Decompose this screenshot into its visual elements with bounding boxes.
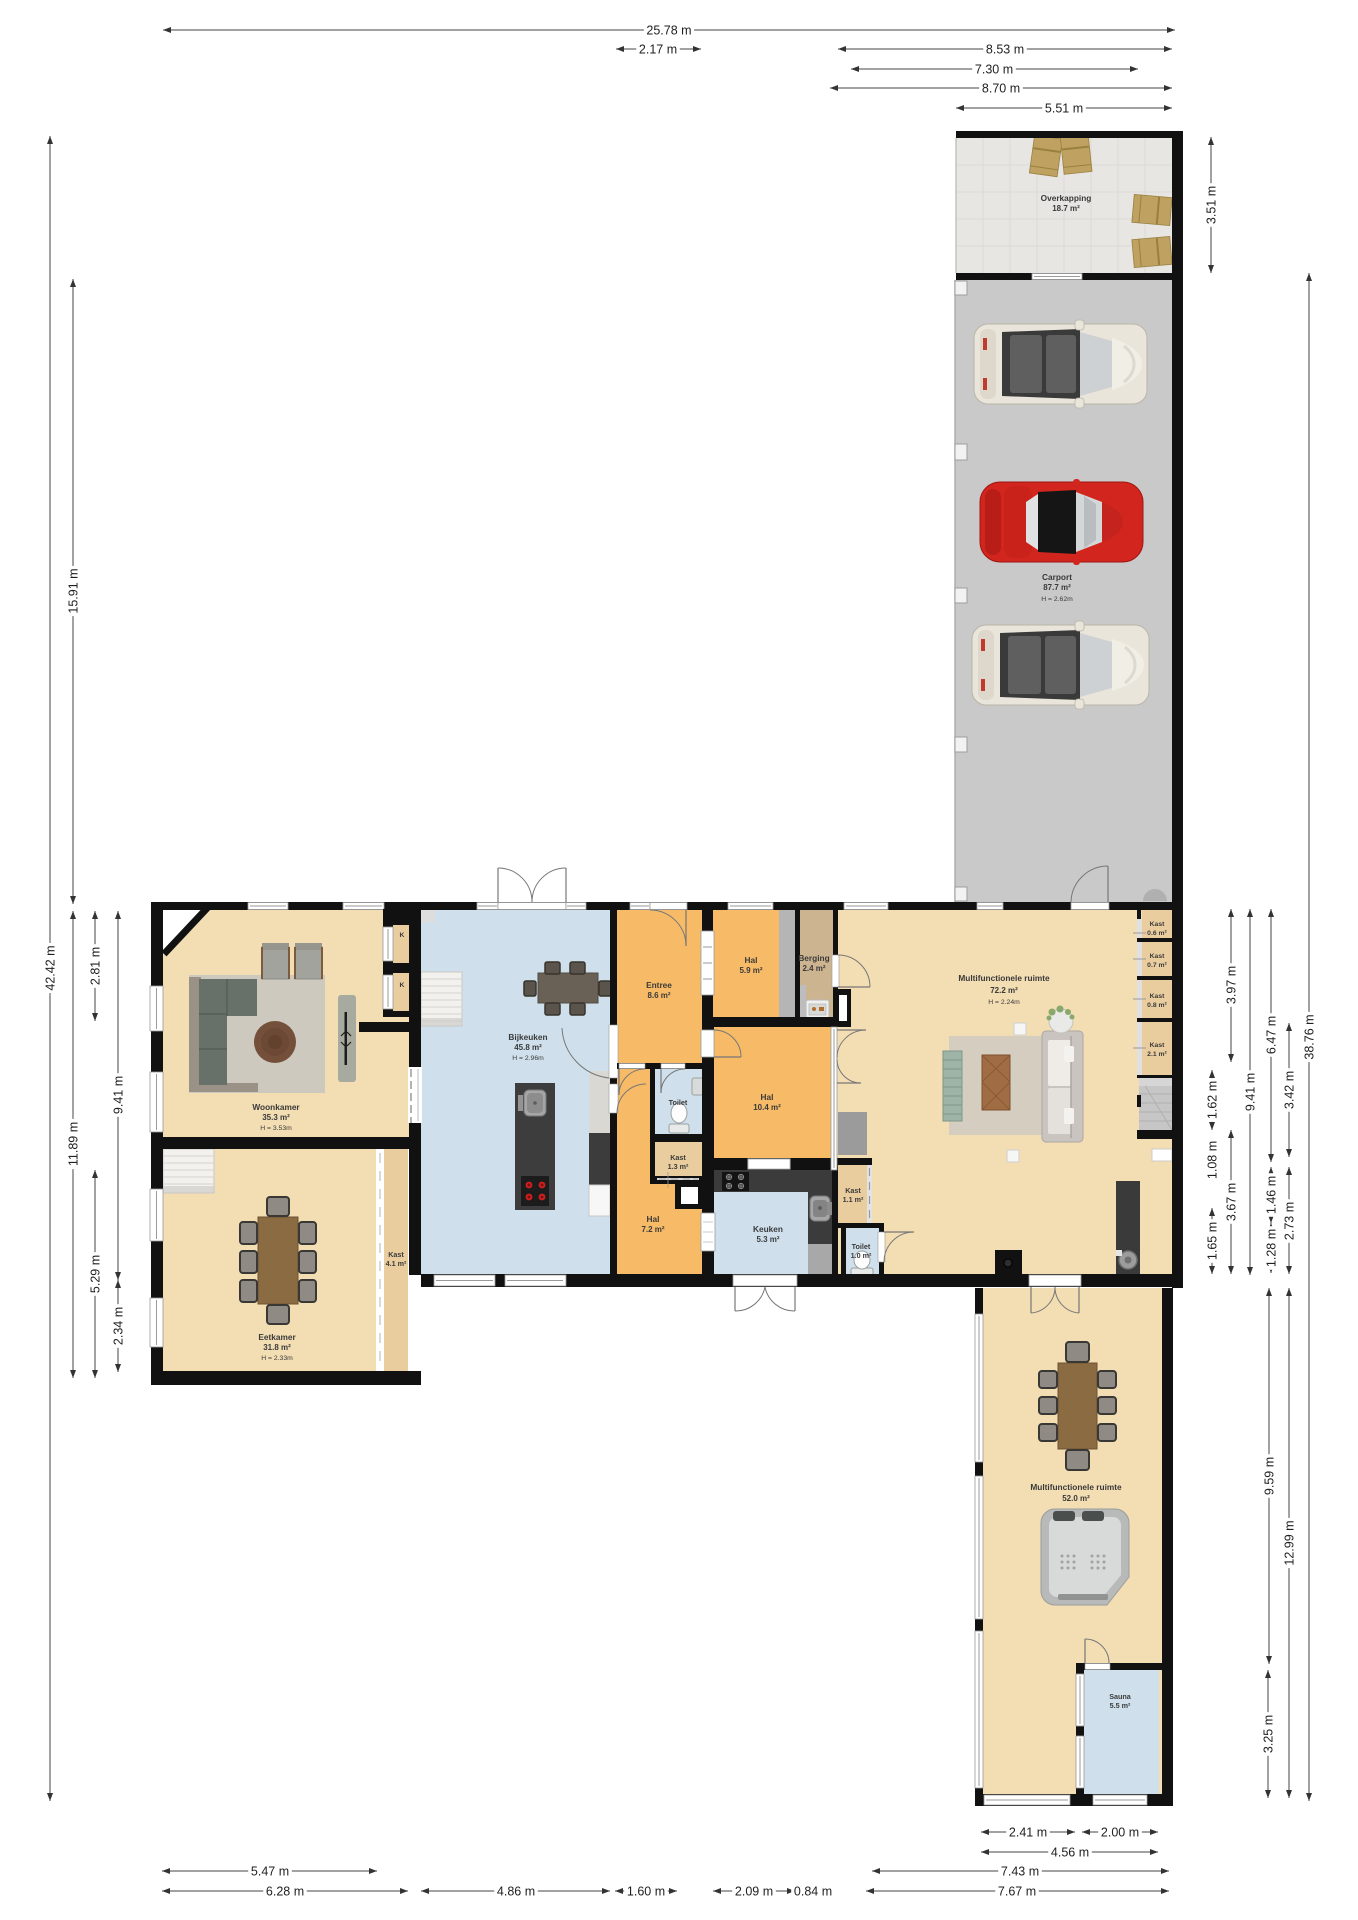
svg-text:5.3 m²: 5.3 m² bbox=[756, 1235, 779, 1244]
svg-text:3.25 m: 3.25 m bbox=[1262, 1715, 1276, 1753]
svg-text:2.73 m: 2.73 m bbox=[1283, 1202, 1297, 1240]
svg-text:Berging: Berging bbox=[798, 953, 829, 963]
svg-text:1.28 m: 1.28 m bbox=[1265, 1229, 1279, 1267]
svg-text:Eetkamer: Eetkamer bbox=[258, 1332, 296, 1342]
svg-text:3.51 m: 3.51 m bbox=[1205, 186, 1219, 224]
svg-text:9.41 m: 9.41 m bbox=[112, 1076, 126, 1114]
svg-text:4.56 m: 4.56 m bbox=[1051, 1846, 1089, 1860]
svg-text:7.2 m²: 7.2 m² bbox=[641, 1225, 664, 1234]
svg-text:Sauna: Sauna bbox=[1109, 1692, 1132, 1701]
svg-text:2.81 m: 2.81 m bbox=[89, 947, 103, 985]
svg-text:42.42 m: 42.42 m bbox=[44, 945, 58, 990]
svg-text:4.1 m²: 4.1 m² bbox=[386, 1259, 407, 1268]
svg-text:72.2 m²: 72.2 m² bbox=[990, 986, 1018, 995]
svg-text:12.99 m: 12.99 m bbox=[1283, 1520, 1297, 1565]
svg-text:H = 2.96m: H = 2.96m bbox=[512, 1055, 544, 1062]
svg-text:5.5 m²: 5.5 m² bbox=[1110, 1701, 1131, 1710]
svg-text:Kast: Kast bbox=[670, 1153, 686, 1162]
svg-text:3.67 m: 3.67 m bbox=[1225, 1183, 1239, 1221]
svg-text:5.47 m: 5.47 m bbox=[251, 1865, 289, 1879]
svg-text:8.53 m: 8.53 m bbox=[986, 43, 1024, 57]
svg-text:Entree: Entree bbox=[646, 980, 672, 990]
svg-text:1.60 m: 1.60 m bbox=[627, 1885, 665, 1899]
svg-text:25.78 m: 25.78 m bbox=[646, 24, 691, 38]
svg-text:Kast: Kast bbox=[1150, 953, 1165, 960]
svg-text:1.3 m²: 1.3 m² bbox=[668, 1162, 689, 1171]
svg-text:8.70 m: 8.70 m bbox=[982, 82, 1020, 96]
svg-text:Multifunctionele ruimte: Multifunctionele ruimte bbox=[958, 973, 1050, 983]
svg-text:Woonkamer: Woonkamer bbox=[252, 1102, 300, 1112]
svg-text:Hal: Hal bbox=[647, 1214, 660, 1224]
svg-text:3.42 m: 3.42 m bbox=[1283, 1071, 1297, 1109]
svg-text:15.91 m: 15.91 m bbox=[67, 568, 81, 613]
svg-text:52.0 m²: 52.0 m² bbox=[1062, 1494, 1090, 1503]
svg-text:K: K bbox=[400, 982, 405, 989]
svg-text:1.62 m: 1.62 m bbox=[1206, 1081, 1220, 1119]
svg-text:Kast: Kast bbox=[1150, 993, 1165, 1000]
svg-text:2.41 m: 2.41 m bbox=[1009, 1826, 1047, 1840]
svg-text:8.6 m²: 8.6 m² bbox=[647, 991, 670, 1000]
svg-text:31.8 m²: 31.8 m² bbox=[263, 1343, 291, 1352]
svg-text:9.59 m: 9.59 m bbox=[1263, 1457, 1277, 1495]
svg-text:Bijkeuken: Bijkeuken bbox=[508, 1032, 547, 1042]
svg-text:K: K bbox=[400, 932, 405, 939]
svg-text:Toilet: Toilet bbox=[669, 1098, 688, 1107]
svg-text:1.08 m: 1.08 m bbox=[1206, 1141, 1220, 1179]
svg-text:Carport: Carport bbox=[1042, 572, 1072, 582]
svg-text:H = 3.53m: H = 3.53m bbox=[260, 1125, 292, 1132]
svg-text:5.51 m: 5.51 m bbox=[1045, 102, 1083, 116]
svg-text:6.47 m: 6.47 m bbox=[1265, 1016, 1279, 1054]
svg-text:2.09 m: 2.09 m bbox=[735, 1885, 773, 1899]
svg-text:H = 2.24m: H = 2.24m bbox=[988, 999, 1020, 1006]
svg-text:6.28 m: 6.28 m bbox=[266, 1885, 304, 1899]
svg-text:1.65 m: 1.65 m bbox=[1206, 1222, 1220, 1260]
svg-text:2.1 m²: 2.1 m² bbox=[1147, 1051, 1167, 1058]
svg-text:87.7 m²: 87.7 m² bbox=[1043, 583, 1071, 592]
svg-text:0.7 m²: 0.7 m² bbox=[1147, 962, 1167, 969]
svg-text:2.4 m²: 2.4 m² bbox=[802, 964, 825, 973]
svg-text:H = 2.33m: H = 2.33m bbox=[261, 1355, 293, 1362]
svg-text:10.4 m²: 10.4 m² bbox=[753, 1103, 781, 1112]
svg-text:Overkapping: Overkapping bbox=[1041, 193, 1092, 203]
svg-text:1.46 m: 1.46 m bbox=[1265, 1176, 1279, 1214]
svg-text:3.97 m: 3.97 m bbox=[1225, 966, 1239, 1004]
svg-text:1.1 m²: 1.1 m² bbox=[843, 1195, 864, 1204]
svg-text:7.30 m: 7.30 m bbox=[975, 63, 1013, 77]
svg-text:Multifunctionele ruimte: Multifunctionele ruimte bbox=[1030, 1482, 1122, 1492]
svg-text:Kast: Kast bbox=[845, 1186, 861, 1195]
svg-text:Kast: Kast bbox=[1150, 921, 1165, 928]
svg-text:Hal: Hal bbox=[761, 1092, 774, 1102]
svg-text:2.34 m: 2.34 m bbox=[112, 1307, 126, 1345]
svg-text:5.29 m: 5.29 m bbox=[89, 1255, 103, 1293]
svg-text:7.43 m: 7.43 m bbox=[1001, 1865, 1039, 1879]
svg-text:0.6 m²: 0.6 m² bbox=[1147, 930, 1167, 937]
svg-text:2.17 m: 2.17 m bbox=[639, 43, 677, 57]
svg-text:Toilet: Toilet bbox=[852, 1242, 871, 1251]
svg-text:Hal: Hal bbox=[745, 955, 758, 965]
svg-text:Kast: Kast bbox=[388, 1250, 404, 1259]
svg-text:18.7 m²: 18.7 m² bbox=[1052, 204, 1080, 213]
svg-text:Keuken: Keuken bbox=[753, 1224, 783, 1234]
svg-text:2.00 m: 2.00 m bbox=[1101, 1826, 1139, 1840]
svg-text:45.8 m²: 45.8 m² bbox=[514, 1043, 542, 1052]
svg-text:11.89 m: 11.89 m bbox=[67, 1122, 81, 1166]
svg-text:Kast: Kast bbox=[1150, 1042, 1165, 1049]
svg-text:7.67 m: 7.67 m bbox=[998, 1885, 1036, 1899]
svg-text:0.84 m: 0.84 m bbox=[794, 1885, 832, 1899]
svg-text:5.9 m²: 5.9 m² bbox=[739, 966, 762, 975]
svg-text:0.8 m²: 0.8 m² bbox=[1147, 1002, 1167, 1009]
svg-text:9.41 m: 9.41 m bbox=[1244, 1073, 1258, 1111]
svg-text:38.76 m: 38.76 m bbox=[1303, 1014, 1317, 1059]
svg-text:4.86 m: 4.86 m bbox=[497, 1885, 535, 1899]
svg-text:H = 2.62m: H = 2.62m bbox=[1041, 596, 1073, 603]
svg-text:35.3 m²: 35.3 m² bbox=[262, 1113, 290, 1122]
svg-text:1.0 m²: 1.0 m² bbox=[851, 1251, 872, 1260]
